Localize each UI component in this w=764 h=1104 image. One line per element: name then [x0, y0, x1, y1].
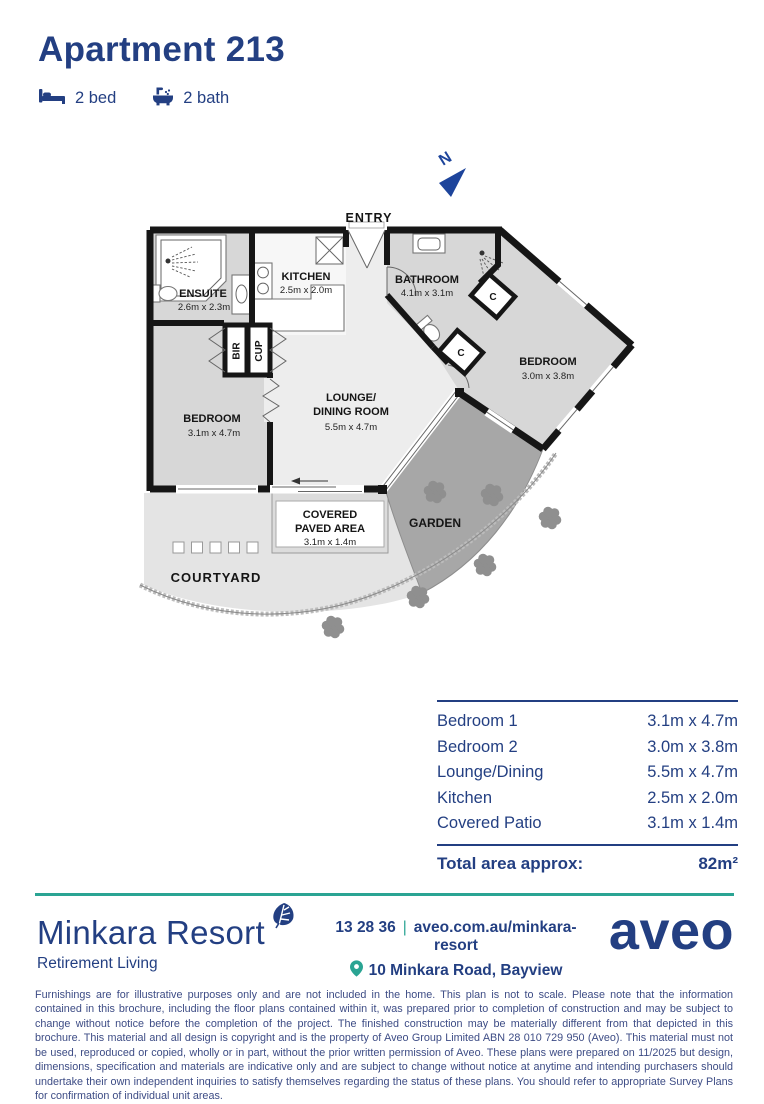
entry-label: ENTRY [346, 211, 393, 225]
leaf-icon [268, 901, 296, 934]
row-label: Kitchen [437, 786, 492, 812]
courtyard-label: COURTYARD [171, 570, 262, 585]
total-value: 82m² [698, 854, 738, 874]
table-row: Kitchen 2.5m x 2.0m [437, 786, 738, 812]
floor-plan: ENSUITE 2.6m x 2.3m KITCHEN 2.5m x 2.0m … [130, 135, 650, 665]
covered-dims: 3.1m x 1.4m [304, 537, 356, 548]
garden-label: GARDEN [409, 516, 461, 530]
ensuite-vanity [232, 275, 251, 314]
row-label: Bedroom 1 [437, 709, 518, 735]
row-value: 3.0m x 3.8m [647, 735, 738, 761]
table-row: Bedroom 1 3.1m x 4.7m [437, 709, 738, 735]
row-value: 2.5m x 2.0m [647, 786, 738, 812]
total-label: Total area approx: [437, 854, 583, 874]
bathroom-sink [413, 234, 445, 253]
bath-icon [152, 86, 174, 111]
row-value: 5.5m x 4.7m [647, 760, 738, 786]
brochure-page: Apartment 213 2 bed [0, 0, 764, 1080]
separator: | [396, 919, 414, 936]
phone-number[interactable]: 13 28 36 [335, 919, 395, 936]
dimensions-table: Bedroom 1 3.1m x 4.7m Bedroom 2 3.0m x 3… [437, 700, 738, 874]
bir-label: BIR [232, 342, 243, 360]
closet2-label: C [457, 348, 464, 359]
table-row: Lounge/Dining 5.5m x 4.7m [437, 760, 738, 786]
bedroom1-label: BEDROOM [183, 413, 240, 425]
covered-label-1: COVERED [303, 509, 357, 521]
aveo-logo: aveo [609, 900, 734, 962]
ensuite-toilet [153, 285, 177, 302]
apartment-facts: 2 bed 2 bath [38, 86, 229, 111]
closet1-label: C [489, 292, 496, 303]
bathroom-dims: 4.1m x 3.1m [401, 288, 453, 299]
covered-label-2: PAVED AREA [295, 523, 365, 535]
row-label: Covered Patio [437, 811, 542, 837]
teal-divider [35, 893, 734, 896]
bed-fact: 2 bed [38, 87, 116, 110]
lounge-label-2: DINING ROOM [313, 406, 389, 418]
contact-block: 13 28 36|aveo.com.au/minkara-resort 10 M… [318, 919, 594, 982]
address: 10 Minkara Road, Bayview [369, 962, 563, 980]
resort-tagline: Retirement Living [37, 955, 265, 973]
table-total-row: Total area approx: 82m² [437, 844, 738, 874]
disclaimer-text: Furnishings are for illustrative purpose… [35, 988, 733, 1104]
bath-label: 2 bath [183, 89, 229, 108]
ensuite-dims: 2.6m x 2.3m [178, 302, 230, 313]
kitchen-pantry [316, 237, 343, 264]
floor-plan-svg: ENSUITE 2.6m x 2.3m KITCHEN 2.5m x 2.0m … [130, 135, 650, 665]
page-title: Apartment 213 [38, 30, 285, 70]
lounge-dims: 5.5m x 4.7m [325, 422, 377, 433]
row-value: 3.1m x 4.7m [647, 709, 738, 735]
kitchen-label: KITCHEN [282, 271, 331, 283]
resort-block: Minkara Resort Retirement Living [37, 914, 265, 973]
location-pin-icon [350, 960, 363, 982]
table-row: Covered Patio 3.1m x 1.4m [437, 811, 738, 837]
kitchen-dims: 2.5m x 2.0m [280, 285, 332, 296]
resort-name: Minkara Resort [37, 914, 265, 952]
bath-fact: 2 bath [152, 86, 229, 111]
row-label: Bedroom 2 [437, 735, 518, 761]
ensuite-label: ENSUITE [179, 288, 227, 300]
bed-icon [38, 87, 66, 110]
north-label: N [436, 149, 455, 170]
kitchen-stove [254, 263, 272, 299]
bathroom-label: BATHROOM [395, 274, 459, 286]
bedroom2-dims: 3.0m x 3.8m [522, 371, 574, 382]
bedroom2-label: BEDROOM [519, 356, 576, 368]
contact-line1: 13 28 36|aveo.com.au/minkara-resort [318, 919, 594, 955]
table-row: Bedroom 2 3.0m x 3.8m [437, 735, 738, 761]
cup-label: CUP [254, 340, 265, 361]
bedroom1-dims: 3.1m x 4.7m [188, 428, 240, 439]
contact-line2: 10 Minkara Road, Bayview [318, 960, 594, 982]
lounge-label-1: LOUNGE/ [326, 392, 376, 404]
north-arrow-icon: N [436, 149, 466, 197]
website-link[interactable]: aveo.com.au/minkara-resort [414, 919, 577, 954]
bed-label: 2 bed [75, 89, 116, 108]
row-label: Lounge/Dining [437, 760, 543, 786]
row-value: 3.1m x 1.4m [647, 811, 738, 837]
